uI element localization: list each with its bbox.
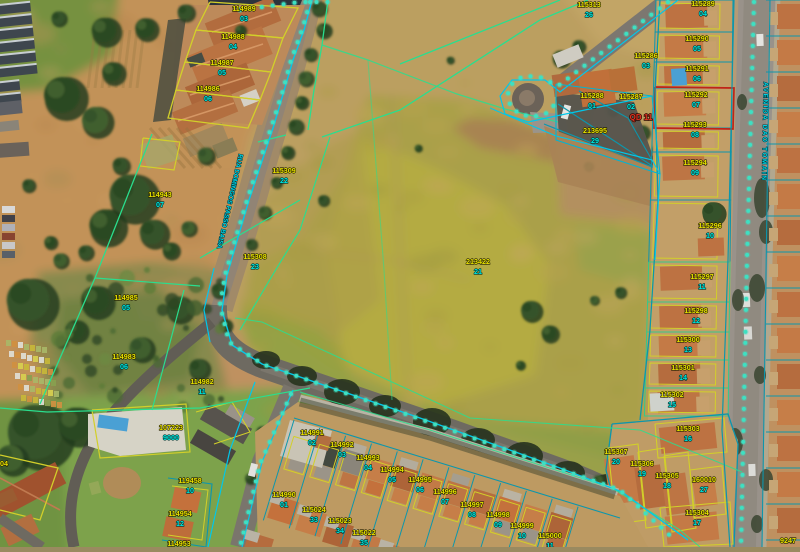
svg-text:10: 10 (518, 531, 526, 540)
svg-text:09: 09 (691, 168, 699, 177)
svg-text:115313: 115313 (577, 0, 601, 9)
svg-text:115292: 115292 (684, 90, 708, 99)
svg-text:17: 17 (693, 518, 701, 527)
svg-text:114985: 114985 (114, 293, 138, 302)
svg-text:10: 10 (706, 231, 714, 240)
svg-text:03: 03 (240, 14, 248, 23)
svg-text:160010: 160010 (692, 475, 716, 484)
svg-text:12: 12 (176, 519, 184, 528)
svg-text:29: 29 (591, 136, 599, 145)
svg-text:115289: 115289 (691, 0, 715, 8)
svg-text:08: 08 (691, 130, 699, 139)
svg-text:07: 07 (441, 497, 449, 506)
svg-text:115000: 115000 (538, 531, 562, 540)
svg-text:114993: 114993 (356, 453, 380, 462)
svg-text:115022: 115022 (352, 528, 376, 537)
svg-text:115298: 115298 (684, 306, 708, 315)
svg-text:06: 06 (120, 362, 128, 371)
svg-text:114953: 114953 (167, 539, 191, 547)
svg-text:21: 21 (474, 267, 482, 276)
svg-text:115294: 115294 (683, 158, 707, 167)
svg-text:213422: 213422 (466, 257, 490, 266)
svg-text:07: 07 (156, 200, 164, 209)
svg-text:26: 26 (585, 10, 593, 19)
svg-text:114996: 114996 (433, 487, 457, 496)
svg-text:114991: 114991 (300, 428, 324, 437)
svg-text:06: 06 (693, 74, 701, 83)
svg-text:QD 11: QD 11 (630, 113, 653, 122)
svg-text:02: 02 (308, 438, 316, 447)
svg-text:15: 15 (668, 400, 676, 409)
svg-text:115024: 115024 (302, 505, 326, 514)
svg-text:115293: 115293 (683, 120, 707, 129)
svg-text:114983: 114983 (112, 352, 136, 361)
svg-text:16: 16 (684, 434, 692, 443)
svg-text:114994: 114994 (380, 465, 404, 474)
svg-text:12: 12 (692, 316, 700, 325)
svg-text:115297: 115297 (690, 272, 714, 281)
svg-text:06: 06 (416, 485, 424, 494)
svg-text:115302: 115302 (660, 390, 684, 399)
svg-text:115290: 115290 (685, 34, 709, 43)
svg-text:27: 27 (700, 485, 708, 494)
svg-text:10: 10 (186, 486, 194, 495)
svg-text:04: 04 (364, 463, 372, 472)
svg-text:114990: 114990 (272, 490, 296, 499)
svg-text:9247: 9247 (780, 536, 796, 545)
svg-text:114943: 114943 (148, 190, 172, 199)
svg-text:9000: 9000 (163, 433, 179, 442)
svg-text:19: 19 (638, 469, 646, 478)
svg-text:114987: 114987 (210, 58, 234, 67)
svg-text:01: 01 (280, 500, 288, 509)
svg-text:114954: 114954 (168, 509, 192, 518)
svg-text:114999: 114999 (510, 521, 534, 530)
svg-text:22: 22 (280, 176, 288, 185)
svg-text:115301: 115301 (671, 363, 695, 372)
svg-text:115304: 115304 (685, 508, 709, 517)
svg-text:114997: 114997 (460, 500, 484, 509)
svg-text:14: 14 (679, 373, 687, 382)
svg-text:11: 11 (546, 541, 554, 547)
svg-text:05: 05 (218, 68, 226, 77)
svg-text:03: 03 (338, 450, 346, 459)
svg-text:33: 33 (310, 515, 318, 524)
svg-text:115305: 115305 (655, 471, 679, 480)
svg-text:115307: 115307 (604, 447, 628, 456)
svg-text:115288: 115288 (580, 91, 604, 100)
svg-text:01: 01 (588, 101, 596, 110)
svg-text:114995: 114995 (408, 475, 432, 484)
svg-text:114988: 114988 (221, 32, 245, 41)
svg-text:07: 07 (692, 100, 700, 109)
svg-text:05: 05 (388, 475, 396, 484)
svg-text:04: 04 (699, 9, 707, 18)
svg-text:03: 03 (642, 61, 650, 70)
svg-text:114998: 114998 (486, 510, 510, 519)
svg-text:04: 04 (229, 42, 237, 51)
svg-text:115296: 115296 (698, 221, 722, 230)
svg-text:115286: 115286 (634, 51, 658, 60)
svg-text:115309: 115309 (272, 166, 296, 175)
svg-text:05: 05 (122, 303, 130, 312)
svg-text:35: 35 (360, 538, 368, 547)
svg-text:115303: 115303 (676, 424, 700, 433)
svg-text:04: 04 (0, 459, 8, 468)
svg-text:114992: 114992 (330, 440, 354, 449)
svg-text:115287: 115287 (619, 92, 643, 101)
svg-text:119458: 119458 (178, 476, 202, 485)
svg-text:11: 11 (698, 282, 706, 291)
svg-text:115308: 115308 (243, 252, 267, 261)
svg-text:107223: 107223 (159, 423, 183, 432)
svg-text:08: 08 (468, 510, 476, 519)
svg-text:34: 34 (336, 526, 344, 535)
svg-text:02: 02 (627, 102, 635, 111)
svg-text:115023: 115023 (328, 516, 352, 525)
svg-text:18: 18 (663, 481, 671, 490)
svg-text:114982: 114982 (190, 377, 214, 386)
svg-text:13: 13 (684, 345, 692, 354)
svg-text:06: 06 (204, 94, 212, 103)
svg-text:114989: 114989 (232, 4, 256, 13)
svg-text:23: 23 (251, 262, 259, 271)
svg-text:20: 20 (612, 457, 620, 466)
svg-text:11: 11 (198, 387, 206, 396)
svg-text:05: 05 (693, 44, 701, 53)
svg-text:115291: 115291 (685, 64, 709, 73)
svg-text:09: 09 (494, 520, 502, 529)
svg-text:115300: 115300 (676, 335, 700, 344)
svg-text:114986: 114986 (196, 84, 220, 93)
svg-text:115306: 115306 (630, 459, 654, 468)
svg-text:213695: 213695 (583, 126, 607, 135)
